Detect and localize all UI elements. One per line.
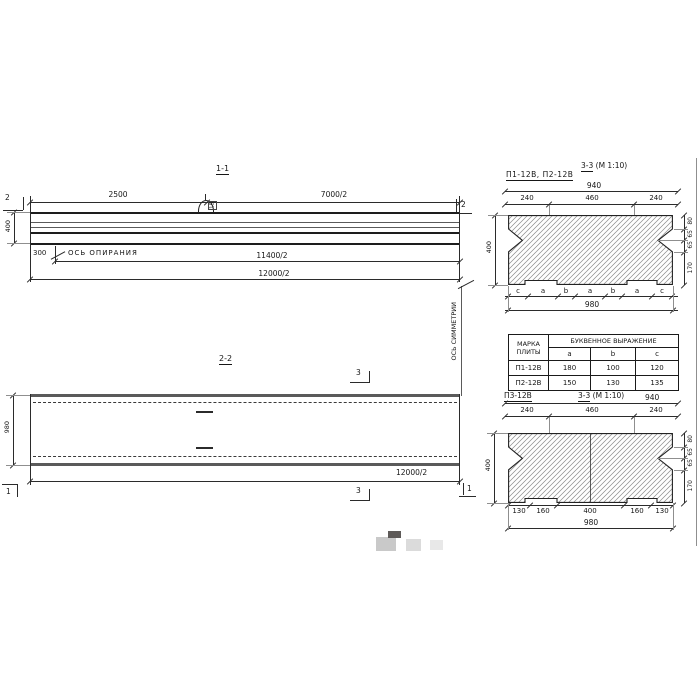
marks-label-p1-p2: П1-12В, П2-12В	[506, 170, 573, 181]
cut-mark-line	[369, 371, 370, 383]
dim-400: 400	[484, 459, 492, 471]
dim-460: 460	[585, 194, 598, 203]
letter-b: b	[611, 287, 615, 296]
dim-tick	[457, 258, 463, 264]
ext-line	[674, 470, 688, 471]
center-mark	[196, 447, 213, 449]
ext-line	[459, 466, 460, 485]
ext-line	[7, 243, 30, 244]
cut-mark-line	[350, 382, 370, 383]
dim-65: 65	[687, 448, 695, 456]
ext-line	[673, 286, 674, 312]
ext-line	[459, 196, 460, 212]
dim-170: 170	[687, 262, 695, 273]
dim-2500: 2500	[108, 190, 127, 199]
section-2-2-title: 2-2	[219, 354, 232, 365]
ext-line	[488, 215, 508, 216]
dim-line	[55, 261, 460, 262]
cross-section-p1-p2	[508, 215, 673, 285]
dim-line	[505, 310, 678, 311]
smudge-artifact	[388, 531, 401, 538]
dim-980: 980	[3, 421, 11, 433]
plan-right-edge	[459, 394, 460, 466]
title-scale: (М 1:10)	[593, 391, 625, 400]
dim-line	[505, 416, 678, 417]
dim-line	[13, 395, 14, 466]
plan-left-edge	[30, 394, 31, 466]
cut-mark-2-left: 2	[5, 193, 10, 202]
dim-line	[495, 215, 496, 285]
dim-11400-2: 11400/2	[256, 251, 287, 260]
dim-980: 980	[584, 518, 598, 527]
dim-tick	[675, 413, 681, 419]
ext-line	[30, 466, 31, 485]
dim-300: 300	[33, 249, 46, 258]
dim-240: 240	[520, 194, 533, 203]
leader-line	[458, 280, 474, 289]
dim-940: 940	[587, 181, 601, 190]
dim-line	[505, 403, 678, 404]
ext-line	[459, 244, 460, 282]
ext-line	[674, 447, 688, 448]
dim-240: 240	[520, 406, 533, 415]
dim-65: 65	[687, 241, 695, 249]
cut-mark-line	[2, 484, 18, 485]
loop-dim-15: 15	[208, 201, 217, 210]
ext-line	[30, 196, 31, 212]
dim-240: 240	[649, 194, 662, 203]
section-outline	[509, 216, 673, 285]
cut-mark-line	[456, 199, 457, 212]
dim-980: 980	[585, 300, 599, 309]
letter-b: b	[564, 287, 568, 296]
ext-line	[658, 240, 688, 241]
plan-top-edge	[30, 394, 460, 397]
plan-dashed-line	[33, 402, 457, 403]
cell-a: 150	[549, 376, 591, 391]
letter-a: a	[635, 287, 639, 296]
symmetry-axis-line	[461, 286, 462, 396]
ext-line	[487, 503, 508, 504]
dim-400: 400	[485, 241, 493, 253]
plan-bottom-edge	[30, 463, 460, 466]
cross-section-p3	[508, 433, 673, 503]
ext-line	[674, 229, 688, 230]
table-row: П2-12В 150 130 135	[509, 376, 679, 391]
cut-mark-line	[459, 496, 476, 497]
dim-80: 80	[687, 435, 695, 443]
dim-line	[494, 433, 495, 503]
dim-400: 400	[583, 507, 596, 516]
dim-12000-2: 12000/2	[396, 468, 427, 477]
cell-b: 130	[591, 376, 636, 391]
dim-170: 170	[687, 480, 695, 491]
strand-line	[30, 222, 460, 223]
dim-160: 160	[536, 507, 549, 516]
dim-line	[30, 481, 460, 482]
ext-line	[508, 286, 509, 312]
dim-240: 240	[649, 406, 662, 415]
lifting-loop-tick	[205, 194, 206, 200]
dim-65: 65	[687, 459, 695, 467]
ext-line	[634, 417, 635, 433]
section-3-3-title-top: 3-3 (М 1:10)	[581, 161, 627, 170]
letter-a: a	[588, 287, 592, 296]
cut-mark-3-bottom: 3	[356, 486, 361, 495]
cut-mark-line	[463, 483, 464, 495]
table-subheader-a: a	[549, 348, 591, 361]
cut-mark-line	[350, 500, 370, 501]
dim-line	[505, 191, 678, 192]
dim-line	[505, 204, 678, 205]
title-scale: (М 1:10)	[596, 161, 628, 170]
cut-mark-line	[23, 197, 24, 210]
dim-tick	[457, 276, 463, 282]
cell-c: 135	[636, 376, 679, 391]
dim-tick	[675, 400, 681, 406]
dim-tick	[675, 188, 681, 194]
table-header-mark: МАРКА ПЛИТЫ	[509, 335, 549, 361]
ext-line	[6, 465, 30, 466]
dim-130: 130	[512, 507, 525, 516]
cut-mark-1-left: 1	[6, 487, 11, 496]
dim-tick	[681, 282, 687, 288]
smudge-artifact	[376, 537, 396, 551]
symmetry-axis-label: ОСЬ СИММЕТРИИ	[450, 302, 458, 361]
strand-line	[30, 227, 460, 228]
cell-a: 180	[549, 361, 591, 376]
dim-line	[30, 202, 460, 203]
ext-line	[487, 433, 508, 434]
ext-line	[6, 395, 30, 396]
sheet-border-line	[696, 158, 697, 546]
table-subheader-b: b	[591, 348, 636, 361]
dim-80: 80	[687, 217, 695, 225]
slab-bottom-edge	[30, 243, 460, 245]
dim-tick	[681, 500, 687, 506]
letter-a: a	[541, 287, 545, 296]
drawing-sheet: 1-1 2500 7000/2 2 2 15 400 300 ОСЬ ОПИРА…	[0, 0, 700, 700]
ext-line	[673, 503, 674, 530]
dim-7000-2: 7000/2	[321, 190, 347, 199]
dim-12000-2: 12000/2	[258, 269, 289, 278]
table-header-expr: БУКВЕННОЕ ВЫРАЖЕНИЕ	[549, 335, 679, 348]
dim-65: 65	[687, 230, 695, 238]
dim-400: 400	[4, 220, 12, 232]
strand-line	[30, 232, 460, 234]
cell-b: 100	[591, 361, 636, 376]
support-axis-label: ОСЬ ОПИРАНИЯ	[68, 249, 138, 258]
section-1-1-title: 1-1	[216, 164, 229, 175]
dim-line	[30, 279, 460, 280]
ext-line	[658, 458, 688, 459]
plan-dashed-line	[33, 456, 457, 457]
ext-line	[674, 252, 688, 253]
dim-940: 940	[645, 393, 659, 402]
letter-expression-table: МАРКА ПЛИТЫ БУКВЕННОЕ ВЫРАЖЕНИЕ a b c П1…	[508, 334, 679, 391]
ext-line	[7, 212, 30, 213]
section-3-3-title-bottom: 3-3 (М 1:10)	[578, 391, 624, 400]
cut-mark-2-right: 2	[461, 200, 466, 209]
dim-tick	[675, 201, 681, 207]
dim-line	[508, 528, 673, 529]
smudge-artifact	[430, 540, 443, 550]
letter-c: c	[660, 287, 664, 296]
cell-mark: П1-12В	[509, 361, 549, 376]
ext-line	[549, 205, 550, 215]
dim-line	[14, 212, 15, 243]
dim-460: 460	[585, 406, 598, 415]
slab-left-edge	[30, 212, 31, 244]
cut-mark-3-top: 3	[356, 368, 361, 377]
ext-line	[549, 417, 550, 433]
title-number: 3-3	[581, 161, 593, 172]
dim-130: 130	[655, 507, 668, 516]
slab-right-edge	[459, 212, 460, 244]
ext-line	[488, 285, 508, 286]
ext-line	[634, 205, 635, 215]
smudge-artifact	[406, 539, 421, 551]
table-subheader-c: c	[636, 348, 679, 361]
cut-mark-line	[17, 484, 18, 497]
letter-c: c	[516, 287, 520, 296]
cell-mark: П2-12В	[509, 376, 549, 391]
ext-line	[508, 503, 509, 530]
cut-mark-line	[369, 489, 370, 501]
cut-mark-1-right: 1	[467, 484, 472, 493]
dim-160: 160	[630, 507, 643, 516]
cell-c: 120	[636, 361, 679, 376]
title-number: 3-3	[578, 391, 590, 402]
slab-top-edge	[30, 212, 460, 214]
center-mark	[196, 411, 213, 413]
table-row: П1-12В 180 100 120	[509, 361, 679, 376]
